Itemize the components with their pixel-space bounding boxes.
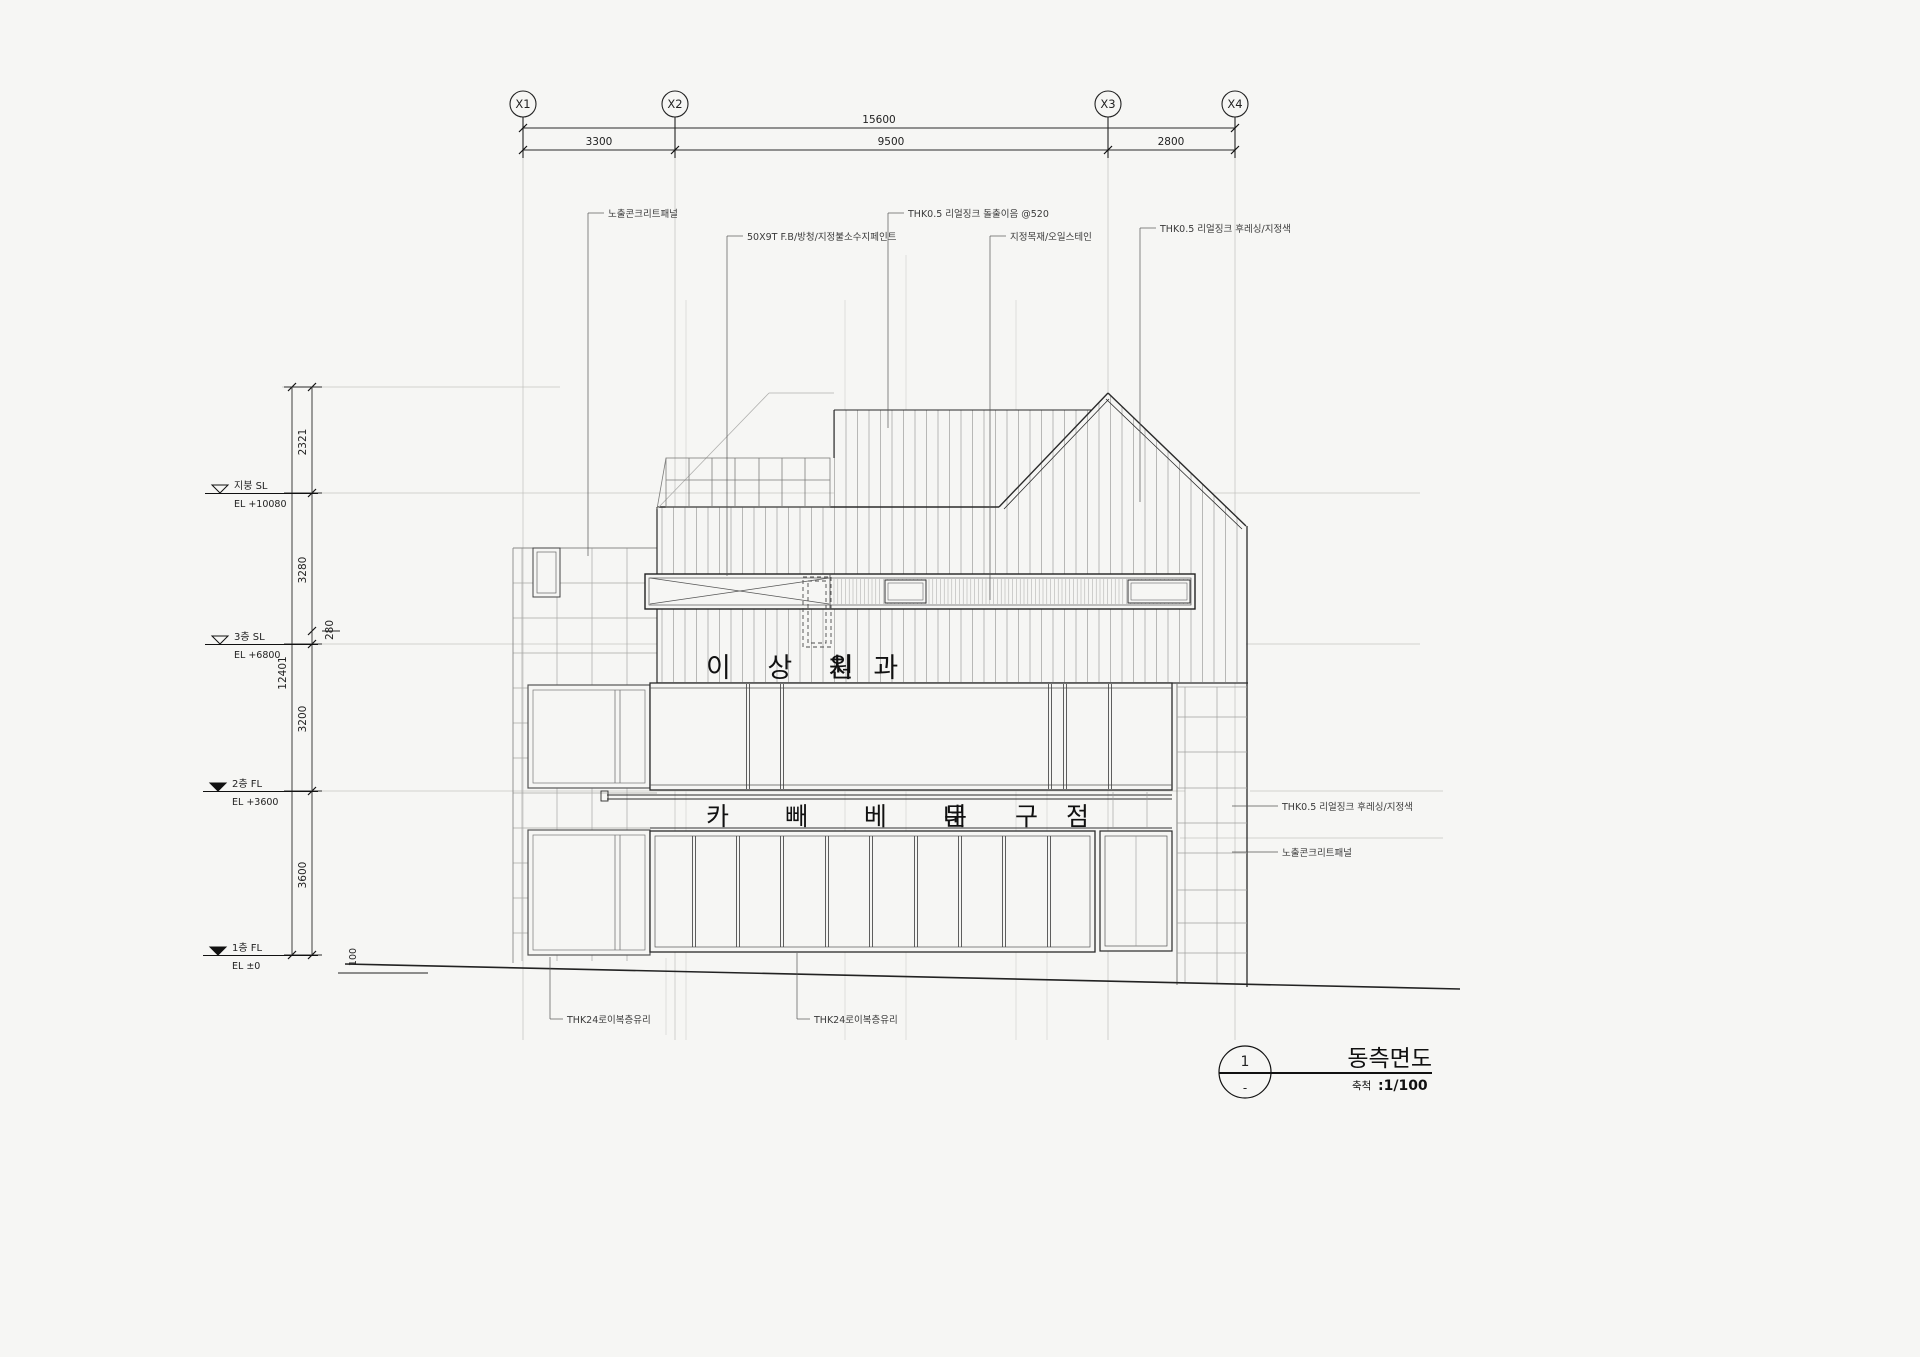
dim-span-1: 3300 xyxy=(586,136,613,148)
leader-lines-bottom xyxy=(550,953,810,1019)
band-window-2 xyxy=(1128,580,1190,603)
grid-bubble-labels: X1 X2 X3 X4 xyxy=(515,97,1242,111)
sign-stationery-b: 점 xyxy=(1066,802,1089,831)
level-el-2f: EL +3600 xyxy=(232,797,278,808)
detail-sub: - xyxy=(1243,1081,1247,1095)
annotation-zinc-flashing-right: THK0.5 리얼징크 후레싱/지정색 xyxy=(1281,802,1413,813)
level-name-3f: 3층 SL xyxy=(234,631,265,643)
left-wing-window-1f xyxy=(528,830,650,955)
dim-y-total: 12401 xyxy=(277,656,289,689)
detail-number: 1 xyxy=(1241,1054,1250,1070)
level-3f-sl: 3층 SL EL +6800 xyxy=(205,631,318,661)
level-el-1f: EL ±0 xyxy=(232,961,260,972)
window-band-2f xyxy=(650,683,1172,790)
left-wing-window-2f xyxy=(528,685,650,788)
annotation-glass-right: THK24로이복층유리 xyxy=(813,1015,898,1026)
annotation-texts-bottom: THK24로이복층유리 THK24로이복층유리 xyxy=(566,1015,898,1026)
sign-dental: 이 상 원 치 과 xyxy=(706,653,904,684)
back-roof-faint-line xyxy=(657,393,834,509)
grid-label-x3: X3 xyxy=(1100,97,1115,111)
annotation-zinc-seam-roof: THK0.5 리얼징크 돌출이음 @520 xyxy=(907,209,1049,220)
ground-line xyxy=(338,964,1460,989)
scale-value: :1/100 xyxy=(1378,1078,1428,1094)
leader-lines-right xyxy=(1232,806,1278,852)
level-2f-fl: 2층 FL EL +3600 xyxy=(203,778,318,808)
grid-label-x2: X2 xyxy=(667,97,682,111)
left-wing xyxy=(513,548,657,963)
title-block: 1 - 동측면도 축척 :1/100 xyxy=(1219,1046,1432,1098)
elevation-drawing: X1 X2 X3 X4 15600 3300 9500 2800 2321 32… xyxy=(0,0,1920,1357)
grid-label-x4: X4 xyxy=(1227,97,1242,111)
dim-y-3200: 3200 xyxy=(297,706,309,733)
level-el-3f: EL +6800 xyxy=(234,650,280,661)
level-name-roof: 지붕 SL xyxy=(234,480,268,492)
annotation-concrete-panel-right: 노출콘크리트패널 xyxy=(1282,848,1352,859)
band-window-1 xyxy=(885,580,926,603)
drawing-sheet: X1 X2 X3 X4 15600 3300 9500 2800 2321 32… xyxy=(0,0,1920,1357)
dim-y-3280: 3280 xyxy=(297,557,309,584)
concrete-bay xyxy=(1177,683,1247,985)
level-name-1f: 1층 FL xyxy=(232,942,262,954)
grid-label-x1: X1 xyxy=(515,97,530,111)
left-dimension-lines xyxy=(284,387,340,955)
annotation-wood-oilstain: 지정목재/오일스테인 xyxy=(1010,232,1092,243)
annotation-concrete-panel-top: 노출콘크리트패널 xyxy=(608,209,678,220)
left-dimension-texts: 2321 3280 3200 3600 12401 280 100 xyxy=(277,429,359,966)
dim-span-2: 9500 xyxy=(878,136,905,148)
level-name-2f: 2층 FL xyxy=(232,778,262,790)
sign-dental-right: 치 과 xyxy=(828,653,904,684)
sign-stationery-a: 문 구 xyxy=(944,802,1058,831)
scale-prefix: 축척 xyxy=(1352,1080,1371,1092)
dim-span-3: 2800 xyxy=(1158,136,1185,148)
annotation-zinc-flashing-top: THK0.5 리얼징크 후레싱/지정색 xyxy=(1159,224,1291,235)
level-roof-sl: 지붕 SL EL +10080 xyxy=(205,480,318,510)
drawing-title: 동측면도 xyxy=(1347,1046,1432,1072)
canopy-flashing xyxy=(601,791,1172,801)
upper-mass-fill xyxy=(657,393,1246,683)
sign-band-1f: 카 빼 베 네 문 구 점 xyxy=(650,792,1172,831)
level-el-roof: EL +10080 xyxy=(234,499,287,510)
roof-terrace-railing xyxy=(657,458,830,509)
annotation-glass-left: THK24로이복층유리 xyxy=(566,1015,651,1026)
concrete-bay-grid xyxy=(1177,687,1247,983)
storefront-right-panel xyxy=(1100,831,1172,951)
dim-y-3600: 3600 xyxy=(297,862,309,889)
dim-overall: 15600 xyxy=(862,114,895,126)
dim-y-2321: 2321 xyxy=(297,429,309,456)
annotation-flat-bar: 50X9T F.B/방청/지정불소수지페인트 xyxy=(747,232,897,243)
level-1f-fl: 1층 FL EL ±0 xyxy=(203,942,318,972)
annotation-texts-right: THK0.5 리얼징크 후레싱/지정색 노출콘크리트패널 xyxy=(1281,802,1413,859)
storefront-1f xyxy=(650,831,1172,952)
left-wing-top-window xyxy=(533,548,560,597)
dim-y-280: 280 xyxy=(324,620,336,640)
annotation-texts-top: 노출콘크리트패널 50X9T F.B/방청/지정불소수지페인트 THK0.5 리… xyxy=(608,209,1291,243)
